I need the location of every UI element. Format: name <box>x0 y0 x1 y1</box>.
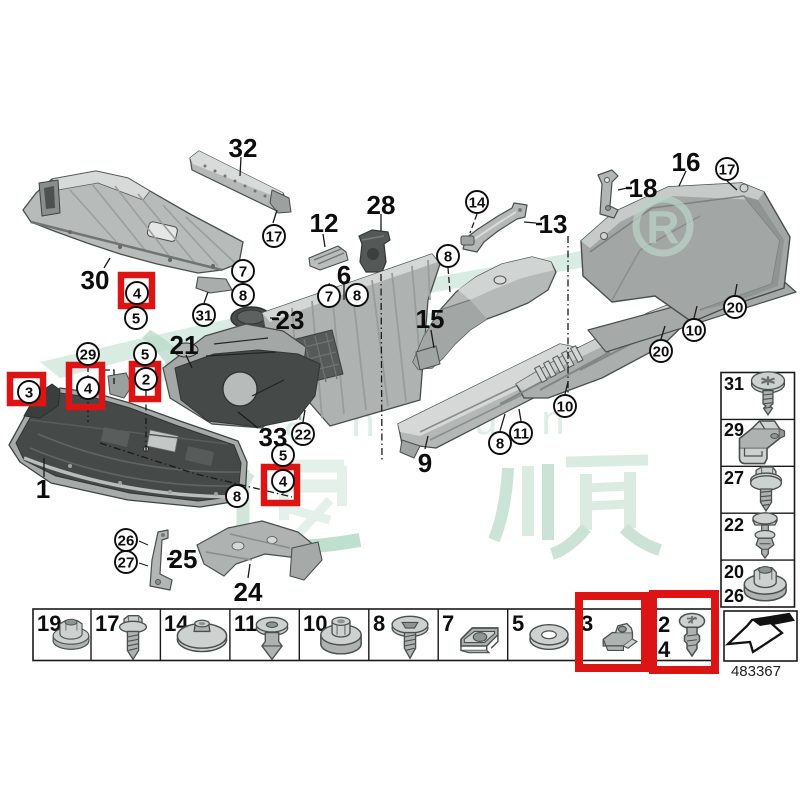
svg-text:R: R <box>646 201 679 253</box>
svg-text:22: 22 <box>724 515 744 535</box>
svg-text:22: 22 <box>295 427 312 444</box>
svg-text:23: 23 <box>276 305 305 335</box>
svg-text:8: 8 <box>233 489 241 506</box>
svg-text:8: 8 <box>353 288 361 305</box>
svg-text:3: 3 <box>25 385 33 402</box>
svg-text:8: 8 <box>239 288 247 305</box>
svg-text:10: 10 <box>686 323 703 340</box>
svg-text:8: 8 <box>444 249 452 266</box>
svg-text:31: 31 <box>196 308 213 325</box>
svg-text:5: 5 <box>512 611 524 636</box>
svg-text:27: 27 <box>724 468 744 488</box>
svg-text:7: 7 <box>325 289 333 306</box>
svg-text:8: 8 <box>496 436 504 453</box>
svg-text:11: 11 <box>234 611 257 636</box>
svg-text:4: 4 <box>279 474 288 491</box>
svg-text:26: 26 <box>724 586 744 606</box>
svg-text:8: 8 <box>373 611 385 636</box>
svg-text:30: 30 <box>81 265 110 295</box>
svg-text:26: 26 <box>118 533 135 550</box>
svg-text:17: 17 <box>95 611 119 636</box>
svg-text:29: 29 <box>80 347 97 364</box>
svg-text:7: 7 <box>442 611 454 636</box>
svg-text:483367: 483367 <box>731 663 781 680</box>
svg-text:33: 33 <box>259 422 288 452</box>
svg-text:7: 7 <box>239 264 247 281</box>
svg-text:4: 4 <box>658 637 671 662</box>
svg-text:1: 1 <box>36 474 50 504</box>
svg-text:4: 4 <box>133 286 142 303</box>
svg-text:17: 17 <box>266 229 283 246</box>
svg-text:2: 2 <box>658 612 670 637</box>
svg-text:6: 6 <box>337 260 351 290</box>
svg-text:14: 14 <box>469 195 486 212</box>
svg-text:21: 21 <box>170 330 199 360</box>
svg-text:28: 28 <box>367 190 396 220</box>
svg-text:5: 5 <box>132 311 140 328</box>
svg-text:12: 12 <box>310 208 339 238</box>
svg-text:13: 13 <box>539 209 568 239</box>
svg-text:27: 27 <box>118 555 135 572</box>
svg-text:15: 15 <box>416 304 445 334</box>
svg-text:9: 9 <box>418 448 432 478</box>
svg-text:24: 24 <box>234 577 263 607</box>
svg-text:18: 18 <box>629 173 658 203</box>
svg-text:17: 17 <box>719 162 736 179</box>
svg-text:4: 4 <box>84 381 93 398</box>
svg-text:16: 16 <box>672 147 701 177</box>
svg-text:20: 20 <box>727 300 744 317</box>
svg-text:5: 5 <box>141 347 149 364</box>
svg-text:10: 10 <box>557 399 574 416</box>
svg-text:20: 20 <box>724 562 744 582</box>
svg-text:31: 31 <box>724 374 744 394</box>
svg-text:11: 11 <box>513 426 529 443</box>
svg-text:32: 32 <box>229 133 258 163</box>
svg-text:20: 20 <box>653 344 670 361</box>
svg-text:2: 2 <box>142 372 150 389</box>
